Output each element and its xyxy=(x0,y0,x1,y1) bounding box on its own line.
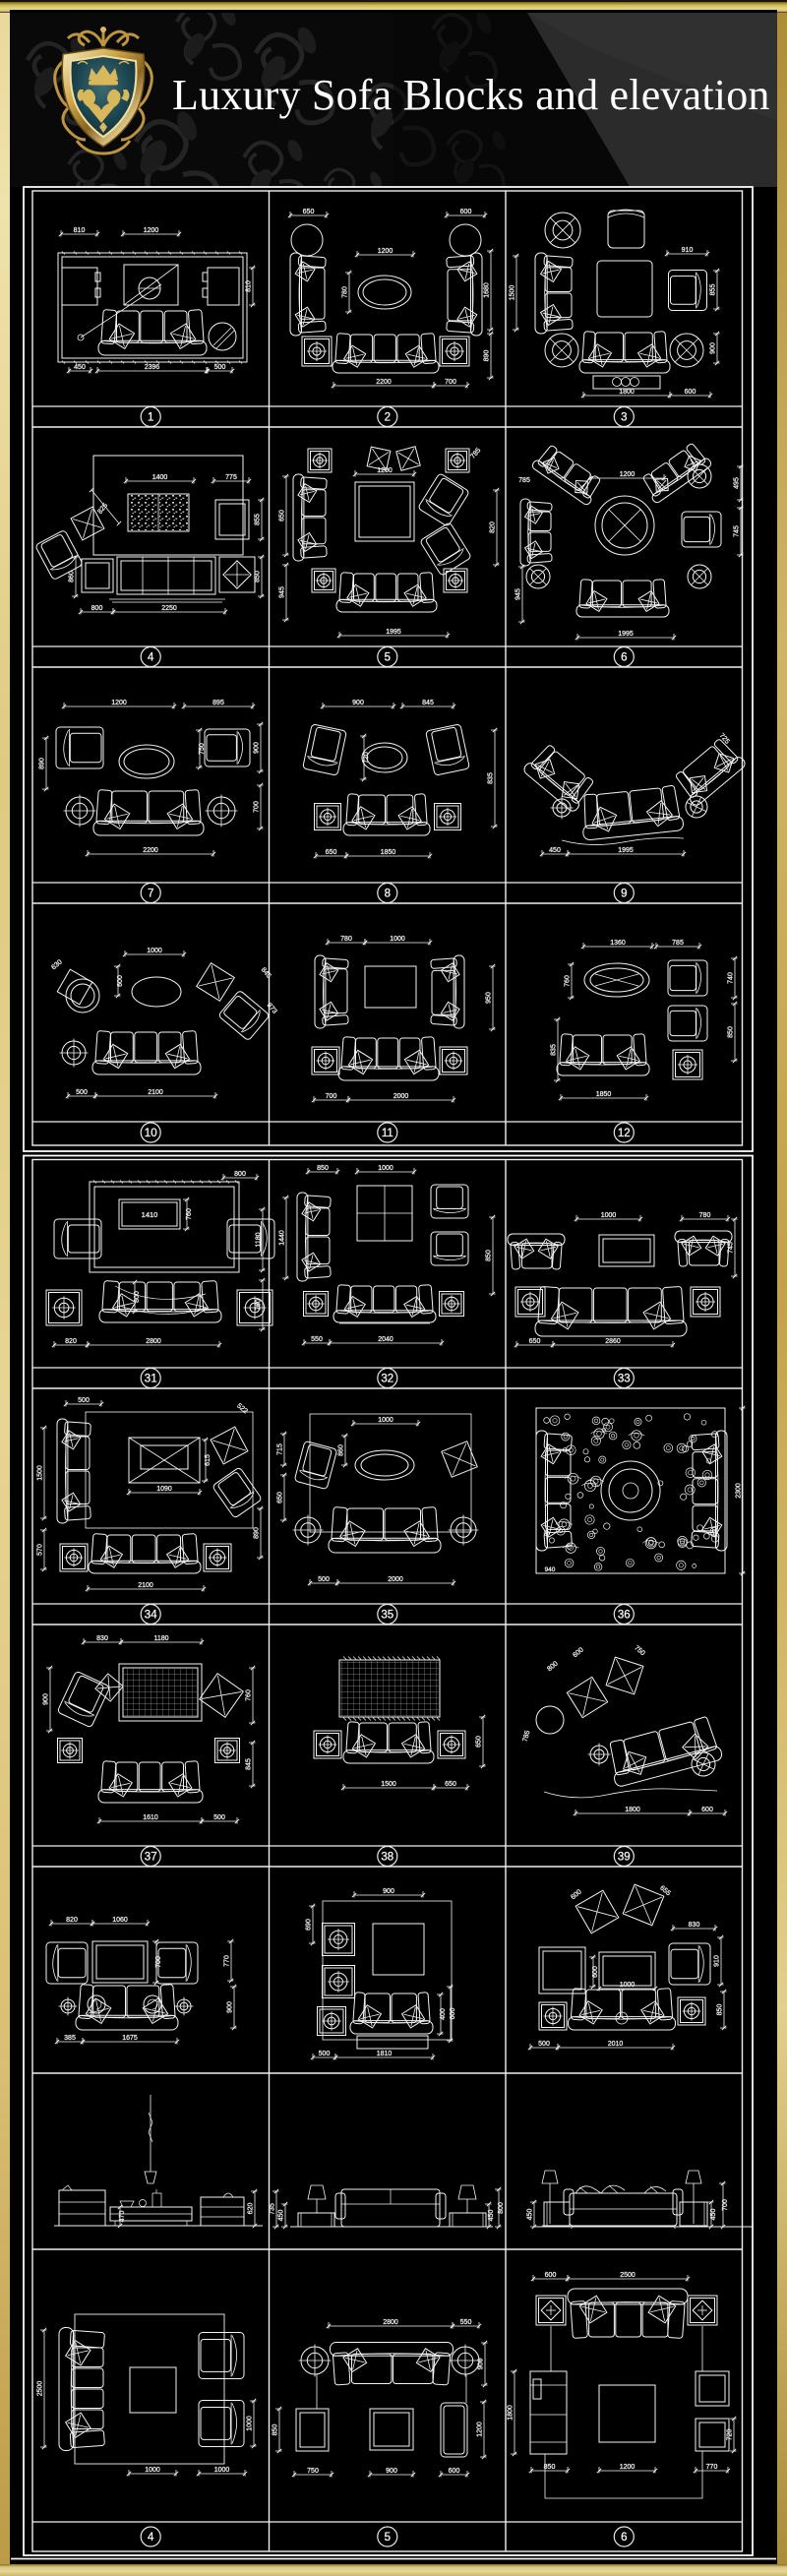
svg-text:700: 700 xyxy=(445,379,456,386)
svg-text:830: 830 xyxy=(96,1635,108,1642)
svg-text:700: 700 xyxy=(155,1956,162,1968)
svg-text:820: 820 xyxy=(66,1917,78,1924)
svg-text:500: 500 xyxy=(538,2041,550,2048)
svg-text:615: 615 xyxy=(205,1454,212,1466)
svg-text:1610: 1610 xyxy=(143,1814,158,1821)
svg-text:1000: 1000 xyxy=(247,2416,254,2431)
svg-text:820: 820 xyxy=(490,521,497,533)
svg-text:850: 850 xyxy=(272,2424,279,2436)
svg-text:2300: 2300 xyxy=(736,1483,743,1499)
svg-text:770: 770 xyxy=(224,1955,231,1967)
svg-text:855: 855 xyxy=(710,284,717,296)
svg-text:450: 450 xyxy=(278,2210,285,2222)
svg-text:630: 630 xyxy=(50,958,64,971)
svg-text:600: 600 xyxy=(592,1966,599,1978)
svg-text:1200: 1200 xyxy=(377,467,393,474)
svg-text:2800: 2800 xyxy=(383,2319,398,2326)
svg-text:1000: 1000 xyxy=(378,1417,393,1424)
svg-text:1680: 1680 xyxy=(484,282,491,298)
svg-text:2010: 2010 xyxy=(608,2041,624,2048)
svg-text:2800: 2800 xyxy=(146,1338,161,1345)
svg-text:845: 845 xyxy=(260,966,272,980)
svg-text:735: 735 xyxy=(270,2203,276,2215)
svg-text:1995: 1995 xyxy=(618,847,634,854)
svg-text:820: 820 xyxy=(65,1338,77,1345)
svg-text:770: 770 xyxy=(706,2464,718,2471)
svg-text:500: 500 xyxy=(318,1576,330,1583)
svg-text:800: 800 xyxy=(91,605,103,612)
svg-text:900: 900 xyxy=(227,2001,234,2013)
svg-text:600: 600 xyxy=(570,1888,583,1901)
svg-text:1500: 1500 xyxy=(37,1465,44,1481)
svg-text:2100: 2100 xyxy=(138,1582,153,1589)
svg-text:800: 800 xyxy=(134,1291,141,1303)
svg-text:650: 650 xyxy=(303,209,315,215)
svg-text:1410: 1410 xyxy=(142,1210,158,1219)
svg-text:620: 620 xyxy=(248,2203,255,2215)
svg-text:650: 650 xyxy=(326,849,337,856)
svg-text:745: 745 xyxy=(728,1242,735,1254)
svg-text:1000: 1000 xyxy=(390,936,405,943)
svg-text:800: 800 xyxy=(546,1660,560,1673)
svg-text:785: 785 xyxy=(518,477,530,484)
svg-text:1000: 1000 xyxy=(620,1982,636,1989)
svg-text:2500: 2500 xyxy=(620,2272,636,2279)
svg-text:450: 450 xyxy=(527,2209,534,2221)
svg-text:715: 715 xyxy=(277,1443,284,1455)
svg-text:600: 600 xyxy=(449,2468,460,2475)
svg-text:740: 740 xyxy=(728,972,735,984)
svg-text:450: 450 xyxy=(488,2210,495,2222)
svg-text:500: 500 xyxy=(78,1397,90,1404)
svg-text:500: 500 xyxy=(213,1814,225,1821)
svg-text:650: 650 xyxy=(445,1781,456,1788)
svg-text:860: 860 xyxy=(69,571,76,583)
svg-text:780: 780 xyxy=(699,1212,711,1219)
svg-text:522: 522 xyxy=(235,1402,249,1415)
svg-text:1180: 1180 xyxy=(153,1635,168,1642)
svg-text:450: 450 xyxy=(710,2209,717,2221)
svg-text:550: 550 xyxy=(311,1336,323,1343)
svg-text:855: 855 xyxy=(255,514,262,525)
svg-text:1400: 1400 xyxy=(152,474,168,481)
svg-text:1060: 1060 xyxy=(112,1917,128,1924)
svg-text:650: 650 xyxy=(277,1492,284,1503)
svg-text:2200: 2200 xyxy=(143,847,158,854)
svg-text:570: 570 xyxy=(37,1544,44,1556)
svg-text:900: 900 xyxy=(43,1693,50,1705)
svg-text:810: 810 xyxy=(74,227,86,234)
svg-text:760: 760 xyxy=(246,1689,253,1701)
svg-text:700: 700 xyxy=(722,2199,729,2211)
svg-text:750: 750 xyxy=(633,1644,646,1657)
svg-text:450: 450 xyxy=(549,847,561,854)
svg-text:690: 690 xyxy=(306,1919,313,1931)
svg-text:1000: 1000 xyxy=(145,2467,160,2474)
svg-text:600: 600 xyxy=(117,975,124,987)
svg-text:650: 650 xyxy=(529,1338,541,1345)
svg-text:720: 720 xyxy=(363,752,370,764)
svg-text:700: 700 xyxy=(326,1093,337,1100)
svg-text:835: 835 xyxy=(551,1044,558,1056)
svg-text:600: 600 xyxy=(572,1646,585,1659)
svg-text:500: 500 xyxy=(214,364,226,371)
svg-text:2040: 2040 xyxy=(378,1336,393,1343)
svg-text:725: 725 xyxy=(718,732,731,745)
svg-text:760: 760 xyxy=(565,975,572,987)
svg-text:2100: 2100 xyxy=(148,1089,163,1096)
svg-text:785: 785 xyxy=(522,1730,532,1743)
svg-text:1995: 1995 xyxy=(618,631,634,638)
svg-text:900: 900 xyxy=(386,2468,397,2475)
svg-text:845: 845 xyxy=(422,700,434,706)
svg-text:1000: 1000 xyxy=(378,1165,393,1172)
svg-text:850: 850 xyxy=(486,1250,493,1261)
svg-text:850: 850 xyxy=(717,2004,724,2016)
svg-text:850: 850 xyxy=(317,1165,329,1172)
svg-text:845: 845 xyxy=(246,1758,253,1770)
svg-text:800: 800 xyxy=(498,2202,505,2214)
svg-text:495: 495 xyxy=(734,477,741,489)
svg-text:655: 655 xyxy=(658,1884,672,1897)
svg-text:650: 650 xyxy=(476,1736,483,1748)
svg-text:2000: 2000 xyxy=(388,1576,403,1583)
svg-text:780: 780 xyxy=(342,286,349,298)
svg-text:785: 785 xyxy=(672,940,684,947)
svg-text:1850: 1850 xyxy=(381,849,396,856)
svg-text:860: 860 xyxy=(338,1444,345,1456)
svg-text:470: 470 xyxy=(119,2211,126,2223)
svg-text:760: 760 xyxy=(256,1299,263,1311)
svg-text:945: 945 xyxy=(279,586,286,598)
svg-text:900: 900 xyxy=(710,342,717,354)
svg-text:750: 750 xyxy=(199,743,206,755)
svg-text:910: 910 xyxy=(682,247,694,254)
svg-text:1360: 1360 xyxy=(610,940,626,947)
svg-text:850: 850 xyxy=(544,2464,556,2471)
svg-text:1000: 1000 xyxy=(147,948,162,954)
svg-text:600: 600 xyxy=(545,2272,557,2279)
svg-text:1200: 1200 xyxy=(620,471,636,478)
svg-text:1200: 1200 xyxy=(111,700,127,706)
svg-text:1810: 1810 xyxy=(377,2051,393,2057)
svg-text:1200: 1200 xyxy=(144,227,159,234)
svg-text:1090: 1090 xyxy=(156,1486,172,1493)
svg-text:835: 835 xyxy=(488,772,495,784)
svg-text:400: 400 xyxy=(440,2008,447,2020)
svg-text:2500: 2500 xyxy=(37,2381,44,2397)
svg-text:900: 900 xyxy=(254,742,261,754)
svg-text:1500: 1500 xyxy=(510,285,516,301)
svg-text:760: 760 xyxy=(186,1208,193,1220)
svg-text:900: 900 xyxy=(478,2359,485,2370)
svg-text:500: 500 xyxy=(319,2051,331,2057)
svg-text:800: 800 xyxy=(234,1171,246,1178)
svg-text:945: 945 xyxy=(515,588,522,600)
svg-text:1800: 1800 xyxy=(619,389,635,396)
svg-text:900: 900 xyxy=(352,700,364,706)
svg-text:1675: 1675 xyxy=(122,2035,138,2042)
svg-text:600: 600 xyxy=(450,2008,456,2020)
svg-text:850: 850 xyxy=(255,571,262,583)
svg-text:1850: 1850 xyxy=(596,1091,612,1098)
svg-text:780: 780 xyxy=(340,936,352,943)
svg-text:2000: 2000 xyxy=(393,1093,409,1100)
svg-text:745: 745 xyxy=(734,525,741,537)
svg-text:900: 900 xyxy=(383,1888,394,1895)
svg-text:1800: 1800 xyxy=(625,1807,640,1813)
svg-text:1200: 1200 xyxy=(378,248,393,255)
svg-text:940: 940 xyxy=(545,1566,556,1573)
svg-text:910: 910 xyxy=(714,1955,721,1967)
svg-text:2250: 2250 xyxy=(161,605,177,612)
svg-text:600: 600 xyxy=(685,389,696,396)
svg-text:720: 720 xyxy=(727,2429,734,2441)
svg-text:385: 385 xyxy=(64,2035,76,2042)
svg-text:890: 890 xyxy=(39,758,46,769)
svg-text:1800: 1800 xyxy=(508,2405,515,2421)
svg-text:2396: 2396 xyxy=(145,364,160,371)
svg-text:1200: 1200 xyxy=(620,2464,636,2471)
svg-text:1500: 1500 xyxy=(381,1781,396,1788)
svg-text:890: 890 xyxy=(484,350,491,362)
svg-text:450: 450 xyxy=(74,364,86,371)
svg-text:1995: 1995 xyxy=(386,629,401,636)
svg-text:500: 500 xyxy=(76,1089,88,1096)
svg-text:550: 550 xyxy=(460,2319,472,2326)
svg-text:830: 830 xyxy=(689,1922,700,1929)
svg-text:775: 775 xyxy=(225,474,237,481)
svg-text:950: 950 xyxy=(486,992,493,1004)
svg-text:700: 700 xyxy=(254,801,261,813)
svg-text:1440: 1440 xyxy=(279,1230,286,1246)
svg-text:1000: 1000 xyxy=(601,1212,617,1219)
svg-text:650: 650 xyxy=(279,510,286,521)
svg-text:750: 750 xyxy=(307,2468,319,2475)
svg-text:850: 850 xyxy=(728,1026,735,1038)
svg-text:810: 810 xyxy=(246,280,253,292)
svg-text:895: 895 xyxy=(212,700,224,706)
svg-text:2200: 2200 xyxy=(376,379,392,386)
svg-text:785: 785 xyxy=(469,447,482,460)
svg-text:890: 890 xyxy=(254,1527,261,1539)
svg-text:2860: 2860 xyxy=(605,1338,621,1345)
svg-text:600: 600 xyxy=(701,1807,713,1813)
svg-text:1200: 1200 xyxy=(477,2422,484,2437)
svg-text:1000: 1000 xyxy=(214,2467,230,2474)
svg-text:1180: 1180 xyxy=(256,1232,263,1247)
svg-text:600: 600 xyxy=(460,209,472,215)
